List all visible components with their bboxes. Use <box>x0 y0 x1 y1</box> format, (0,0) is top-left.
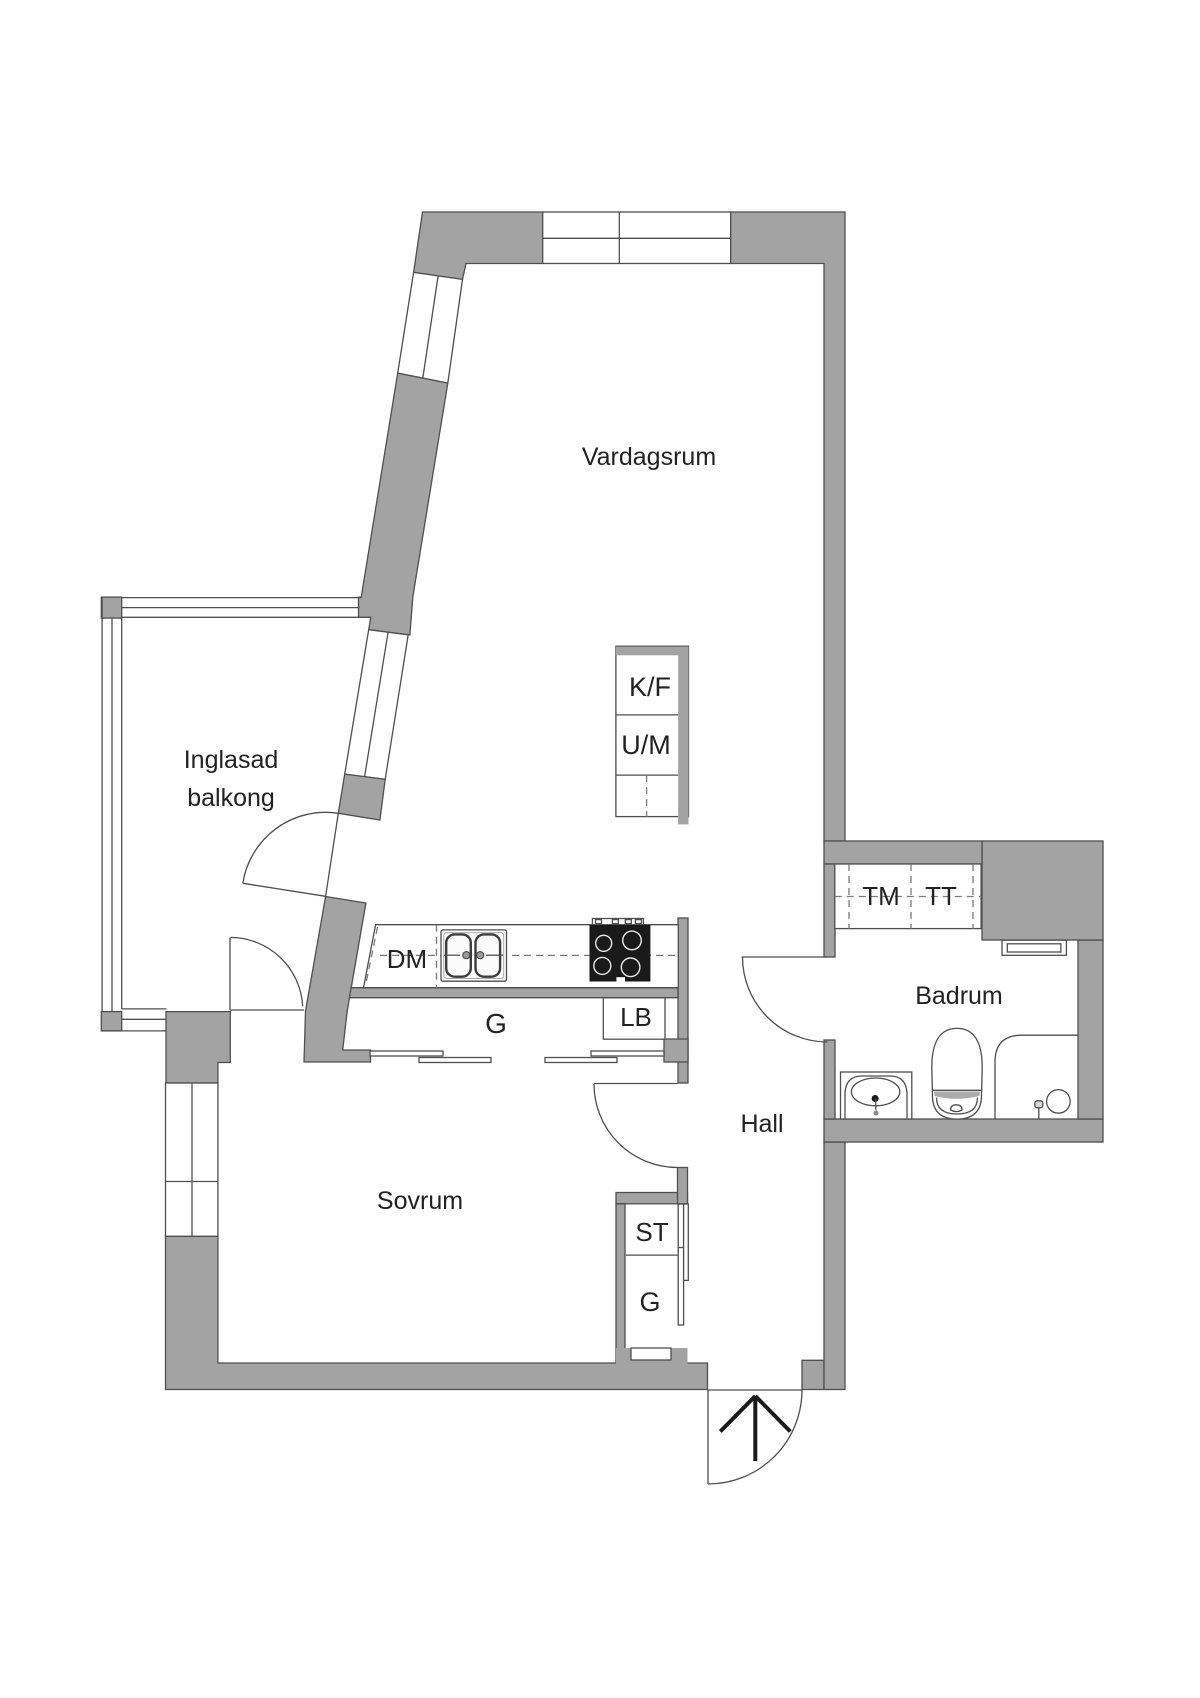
svg-text:ST: ST <box>635 1217 668 1247</box>
svg-text:Vardagsrum: Vardagsrum <box>582 443 716 471</box>
svg-text:G: G <box>639 1287 660 1317</box>
svg-text:Inglasad: Inglasad <box>184 746 279 774</box>
svg-text:K/F: K/F <box>629 672 671 702</box>
svg-text:DM: DM <box>387 944 427 974</box>
svg-text:U/M: U/M <box>621 730 671 760</box>
svg-text:TT: TT <box>925 881 957 911</box>
svg-text:G: G <box>485 1008 507 1039</box>
svg-text:Badrum: Badrum <box>915 982 1003 1010</box>
svg-text:TM: TM <box>862 881 900 911</box>
svg-text:Sovrum: Sovrum <box>377 1187 463 1215</box>
svg-text:Hall: Hall <box>740 1110 783 1138</box>
svg-text:balkong: balkong <box>187 784 275 812</box>
svg-text:LB: LB <box>620 1002 652 1032</box>
